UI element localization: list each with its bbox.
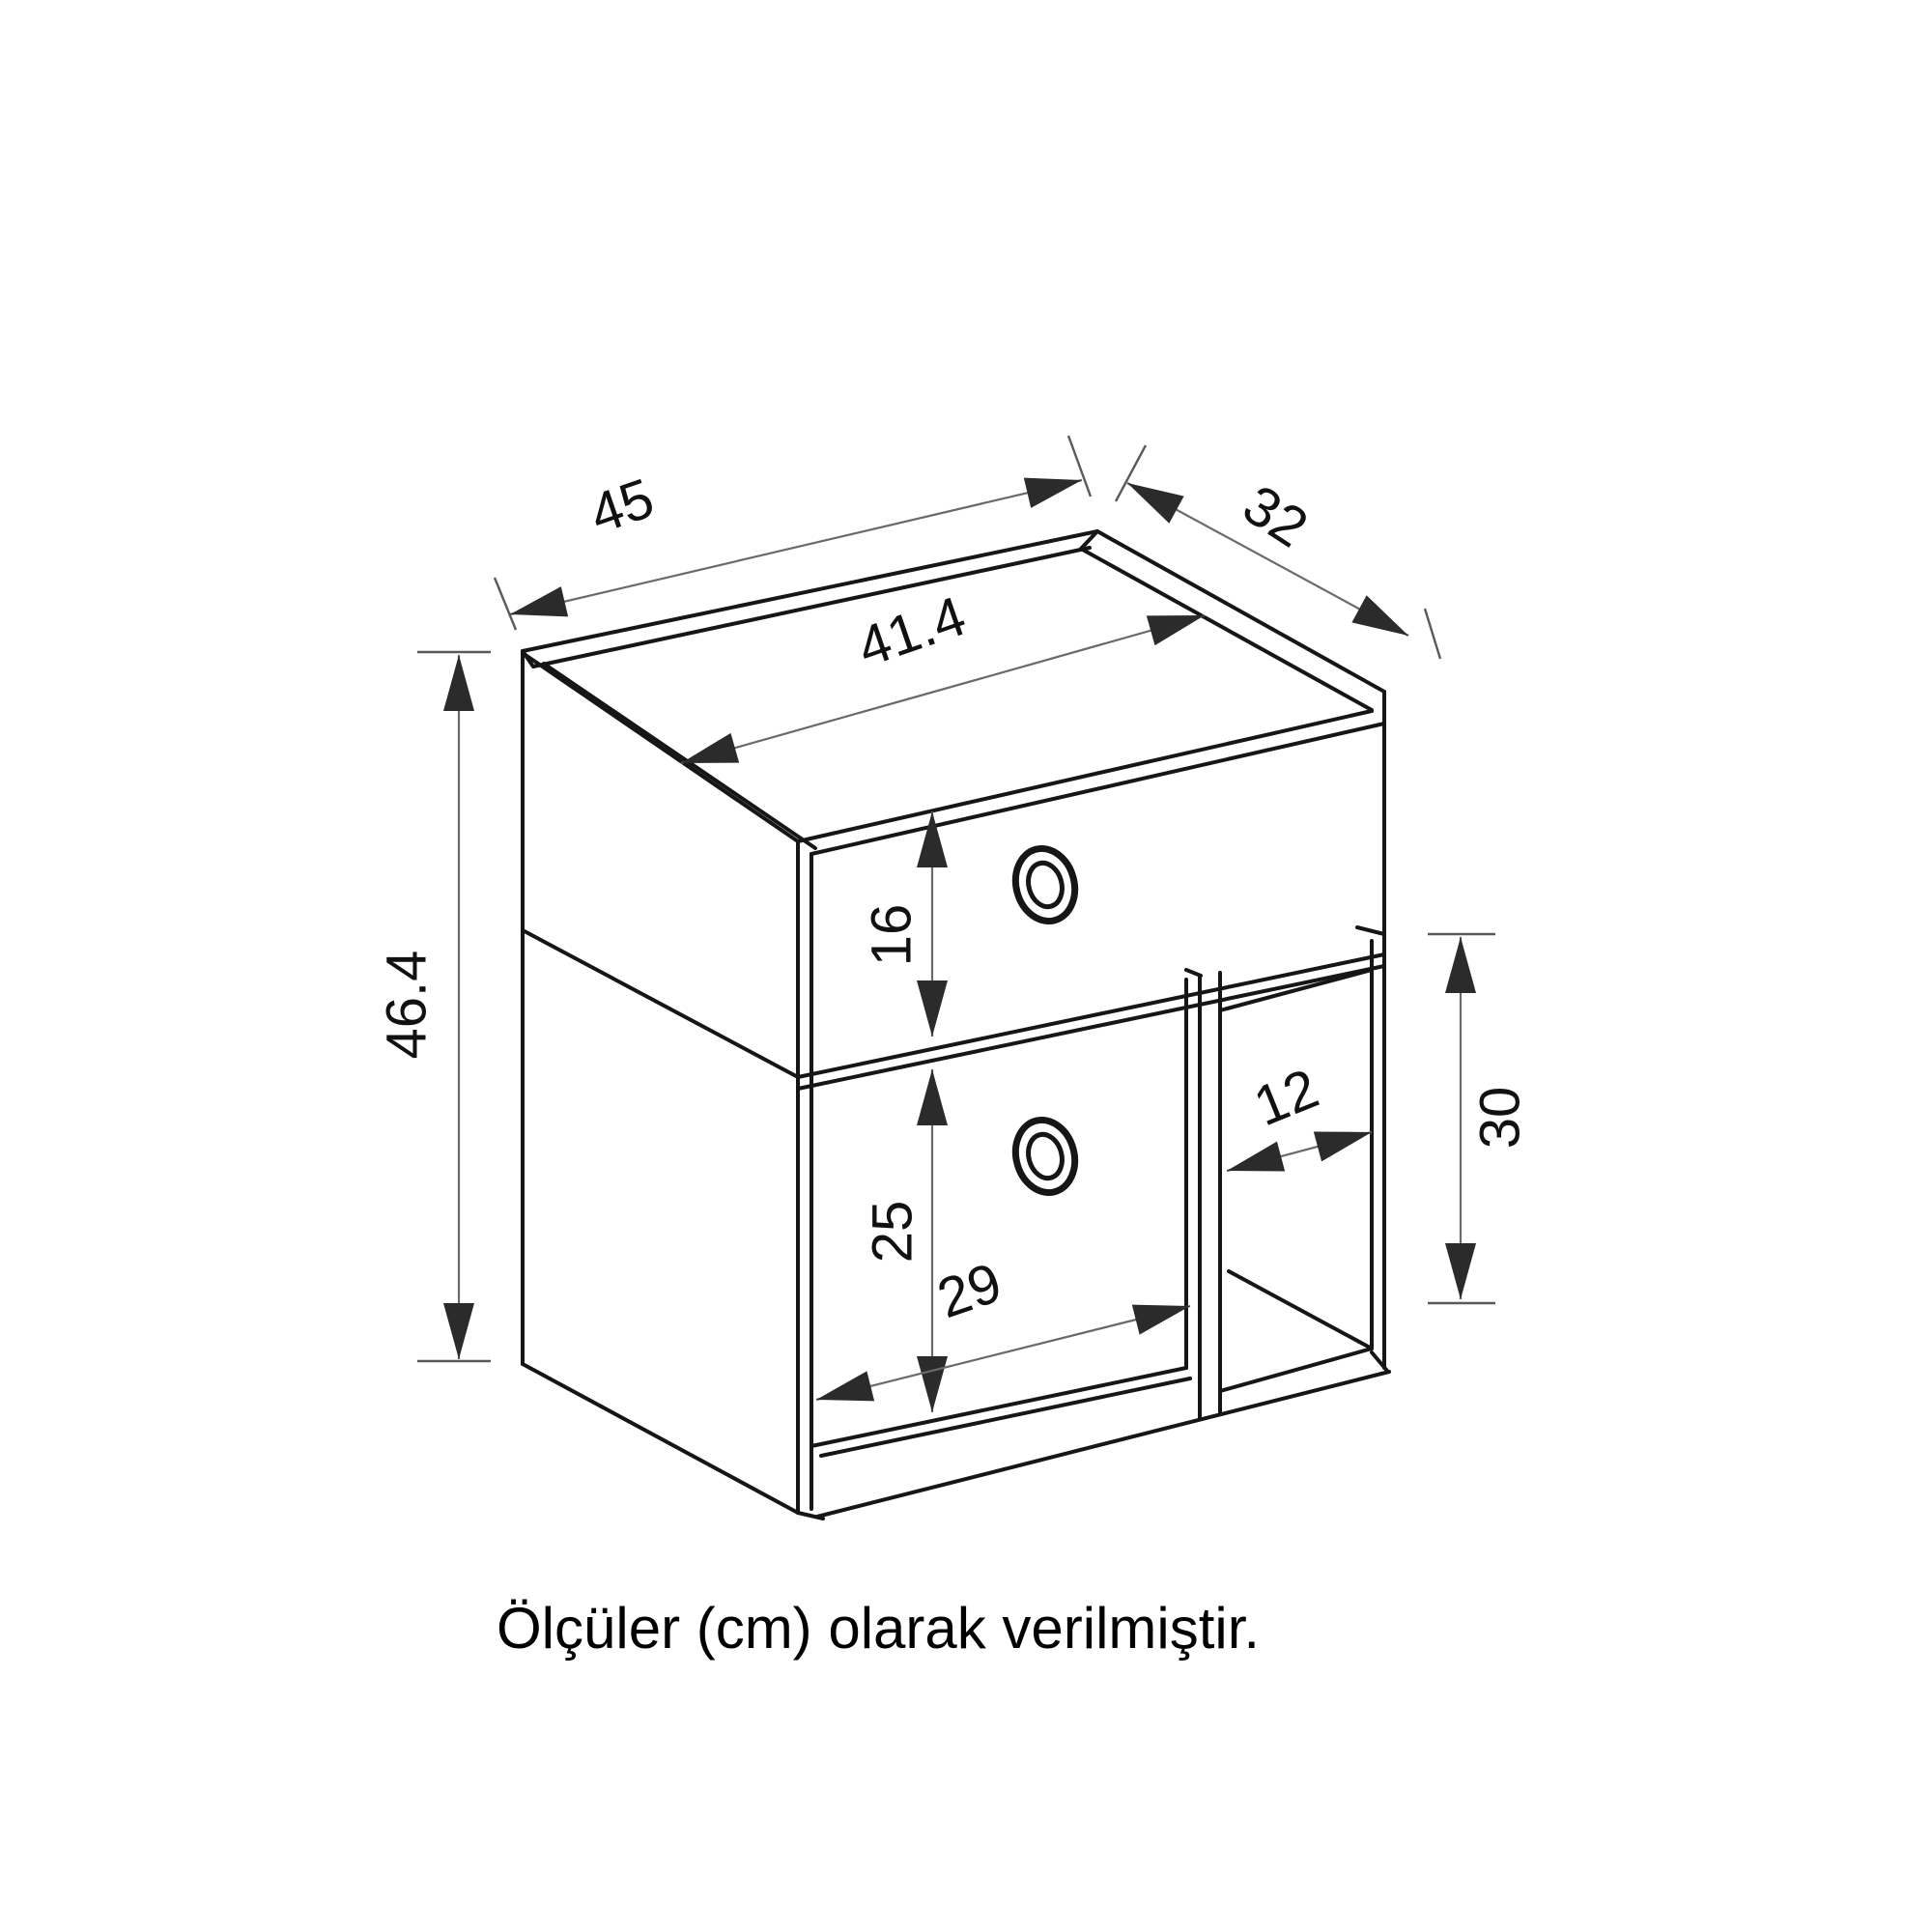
diagram-page: 45 32 41.4 46.4 16 25 29 12 30 Öl xyxy=(0,0,1932,1932)
dimension-inner-width-41-4: 41.4 xyxy=(681,584,1205,763)
technical-drawing-canvas: 45 32 41.4 46.4 16 25 29 12 30 Öl xyxy=(0,0,1932,1932)
niche-header-bottom-edge xyxy=(1220,970,1372,1010)
dimension-drawer-height-16: 16 xyxy=(860,811,932,1037)
base-front-edge xyxy=(817,1372,1389,1517)
right-panel-top-inner-edge xyxy=(1081,549,1372,710)
niche-shelf-front-edge xyxy=(1220,1349,1372,1391)
side-divider-edge xyxy=(523,930,798,1077)
units-caption: Ölçüler (cm) olarak verilmiştir. xyxy=(497,1596,1260,1661)
dimension-niche-height-30: 30 xyxy=(1428,934,1531,1303)
dim-16-label: 16 xyxy=(860,904,923,967)
dimension-niche-width-12: 12 xyxy=(1227,1057,1372,1171)
top-front-edge xyxy=(798,711,1372,841)
dim-29-label: 29 xyxy=(930,1251,1009,1330)
door-knob xyxy=(1008,1114,1083,1200)
left-panel-top-outer-edge xyxy=(523,653,798,841)
drawer-knob xyxy=(1008,842,1083,928)
niche-shelf-side-edge xyxy=(1229,1271,1372,1349)
dimension-top-width-45: 45 xyxy=(495,436,1091,630)
door-bottom-edge-thickness xyxy=(821,1378,1190,1456)
dim-12-label: 12 xyxy=(1245,1057,1326,1138)
right-panel-top-edge xyxy=(1097,531,1384,692)
cabinet-outline xyxy=(523,531,1389,1519)
left-panel-top-inner-edge xyxy=(544,664,815,848)
drawer-top-edge xyxy=(811,724,1384,854)
dim-41-4-label: 41.4 xyxy=(850,584,974,679)
door-bottom-edge xyxy=(811,1368,1186,1446)
dimension-door-height-25: 25 xyxy=(861,1069,932,1412)
dim-45-label: 45 xyxy=(582,467,662,546)
back-rail-inner-edge xyxy=(533,548,1090,667)
dim-30-label: 30 xyxy=(1468,1087,1531,1150)
dimension-total-height-46-4: 46.4 xyxy=(375,652,491,1361)
niche-left-post-cap xyxy=(1186,970,1201,976)
dim-25-label: 25 xyxy=(861,1201,923,1264)
niche-right-post-cap xyxy=(1357,927,1384,934)
left-side-bottom-edge xyxy=(523,1364,798,1513)
dim-46-4-label: 46.4 xyxy=(375,951,438,1060)
